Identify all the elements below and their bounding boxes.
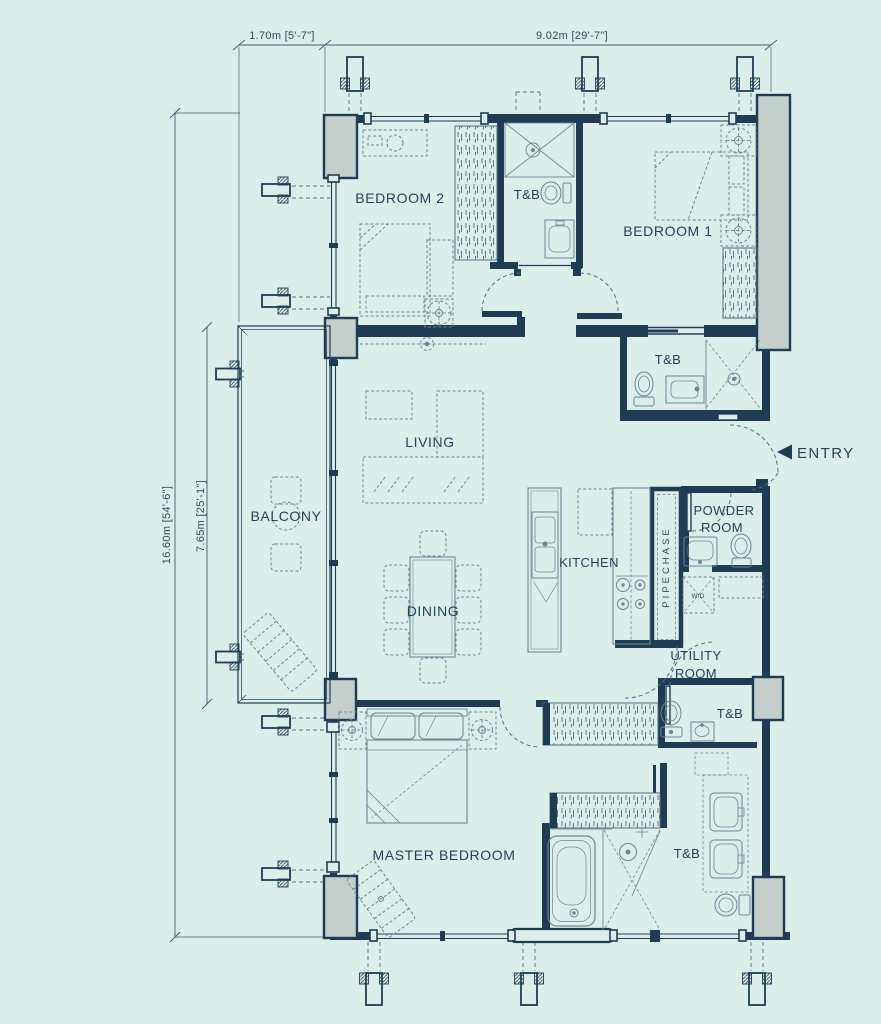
dining-label: DINING <box>407 603 460 619</box>
column <box>753 677 783 720</box>
bedroom1-label: BEDROOM 1 <box>623 223 712 239</box>
utility-room-label-2: ROOM <box>675 666 717 681</box>
column <box>324 876 357 938</box>
floor-plan-canvas: 1.70m [5'-7"] 9.02m [29'-7"] 16.60m [54'… <box>0 0 881 1024</box>
living-label: LIVING <box>405 434 455 450</box>
kitchen-label: KITCHEN <box>559 555 619 570</box>
entry-label: ENTRY <box>797 445 855 462</box>
dimension-top-large: 9.02m [29'-7"] <box>536 30 608 42</box>
floor-plan-page: 1.70m [5'-7"] 9.02m [29'-7"] 16.60m [54'… <box>0 0 881 1024</box>
master-closet-1 <box>543 703 658 745</box>
shared-tb-label: T&B <box>514 187 540 202</box>
dimension-side-full: 16.60m [54'-6"] <box>161 486 173 564</box>
column <box>753 877 784 938</box>
washer-dryer-label: W/D <box>691 593 704 600</box>
entry-door-leaf <box>718 414 738 420</box>
bedroom2-label: BEDROOM 2 <box>355 190 444 206</box>
dimension-side-balcony: 7.65m [25'-1"] <box>195 480 207 552</box>
balcony-label: BALCONY <box>250 508 321 524</box>
master-closet-2 <box>550 793 660 828</box>
utility-tb-label: T&B <box>717 706 743 721</box>
utility-room-label-1: UTILITY <box>670 648 721 663</box>
bedroom2-wardrobe <box>455 126 497 260</box>
pipechase-label: PIPECHASE <box>661 526 672 607</box>
bedroom1-wardrobe <box>723 248 757 318</box>
dimension-top-small: 1.70m [5'-7"] <box>249 30 315 42</box>
bedroom1-tb-label: T&B <box>655 352 681 367</box>
column <box>324 115 357 178</box>
column <box>757 95 790 350</box>
bottom-door-header <box>512 929 612 942</box>
master-tb-label: T&B <box>674 846 700 861</box>
powder-room-label-1: POWDER <box>694 503 755 518</box>
powder-room-label-2: ROOM <box>701 520 743 535</box>
master-bedroom-label: MASTER BEDROOM <box>373 847 516 863</box>
powder-door-leaf <box>687 493 691 531</box>
